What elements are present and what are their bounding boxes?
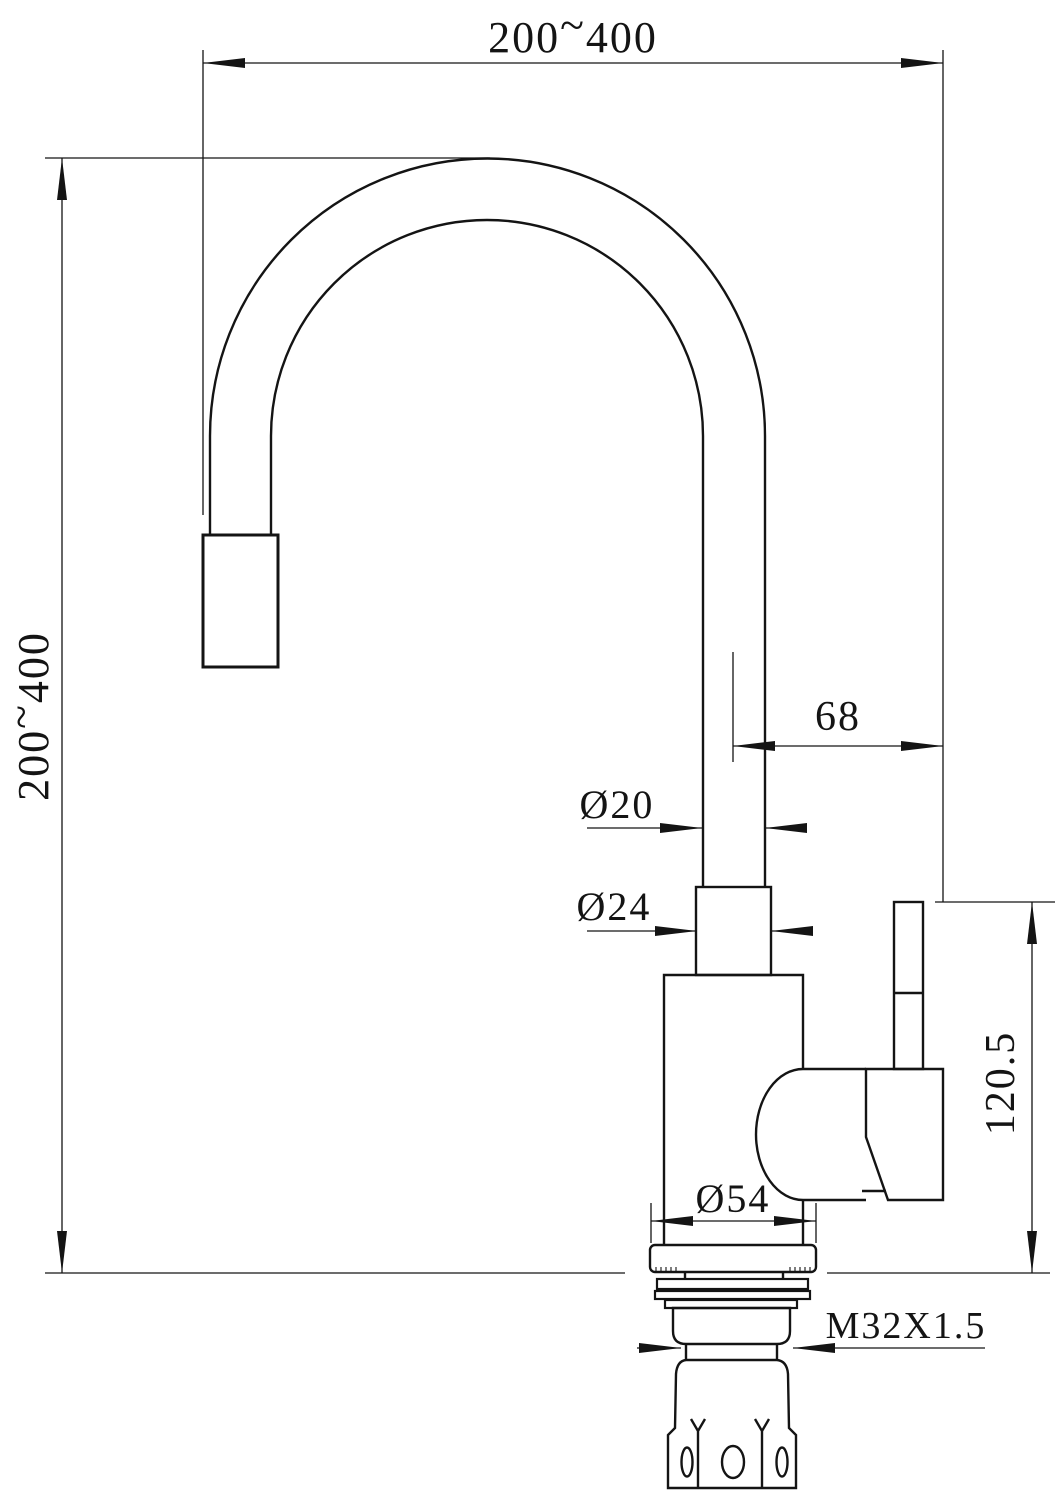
arrow-left-icon (765, 823, 807, 833)
fitting-slot-right (777, 1448, 788, 1477)
arrow-down-icon (1027, 1231, 1037, 1273)
dim-base-diameter: Ø54 (651, 1176, 816, 1243)
mounting-nut (673, 1308, 790, 1344)
dim-label-base-diameter: Ø54 (696, 1176, 771, 1221)
spout-nozzle (203, 535, 278, 667)
dim-mounting-thread: M32X1.5 (637, 1305, 986, 1353)
fitting-wing-left (691, 1419, 705, 1488)
spout-outer-curve (210, 159, 765, 888)
dim-top-width: 200~400 (203, 1, 943, 902)
dim-label-handle-offset: 68 (815, 694, 861, 740)
spacer-washer (655, 1291, 810, 1299)
arrow-right-icon (901, 741, 943, 751)
arrow-left-icon (733, 741, 775, 751)
base-flange (650, 1245, 816, 1272)
arrow-right-icon (655, 926, 697, 936)
gasket-washer (657, 1279, 808, 1289)
riser-collar (696, 887, 771, 975)
arrow-right-icon (660, 823, 702, 833)
dim-handle-height: 120.5 (935, 902, 1055, 1273)
dim-label-handle-height: 120.5 (978, 1031, 1024, 1136)
arrow-up-icon (1027, 902, 1037, 944)
arrow-right-icon (774, 1216, 816, 1226)
dim-label-collar-diameter: Ø24 (577, 884, 652, 929)
dim-label-side-height: 200~400 (0, 631, 58, 801)
arrow-left-icon (203, 58, 245, 68)
thread-neck (686, 1344, 777, 1360)
arrow-left-icon (771, 926, 813, 936)
handle-stem (894, 902, 923, 1069)
faucet-outline (203, 159, 943, 1489)
dim-label-top-width: 200~400 (488, 1, 658, 62)
dim-spout-tube-diameter: Ø20 (580, 782, 807, 833)
arrow-left-icon (651, 1216, 693, 1226)
dim-label-mounting-thread: M32X1.5 (826, 1305, 987, 1347)
arrow-up-icon (57, 158, 67, 200)
fitting-slot-center (722, 1446, 744, 1478)
fitting-wing-right (755, 1419, 769, 1488)
fitting-slot-left (682, 1448, 693, 1477)
drawing-sheet: 200~400 200~400 68 Ø20 Ø24 (0, 0, 1061, 1500)
dim-side-height: 200~400 (0, 158, 1050, 1273)
dim-collar-diameter: Ø24 (577, 884, 813, 936)
dim-label-spout-tube-diameter: Ø20 (580, 782, 655, 827)
arrow-right-icon (901, 58, 943, 68)
arrow-right-icon (639, 1343, 681, 1353)
arrow-down-icon (57, 1231, 67, 1273)
valve-housing (756, 1069, 866, 1200)
faucet-technical-drawing: 200~400 200~400 68 Ø20 Ø24 (0, 0, 1061, 1500)
handle-lever-body (866, 1069, 943, 1200)
